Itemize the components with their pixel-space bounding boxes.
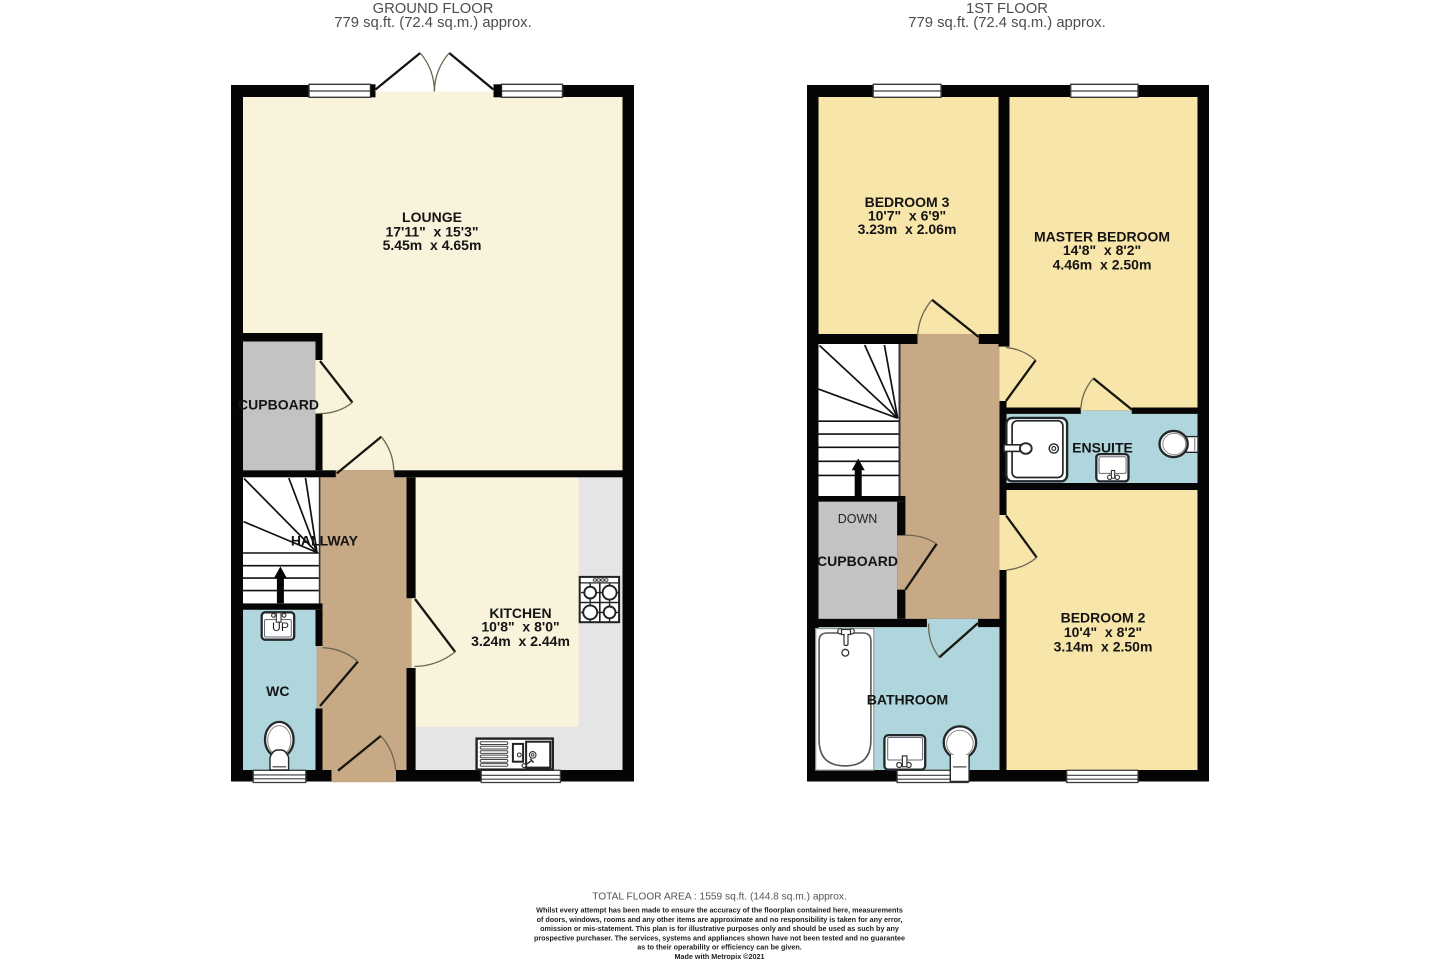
svg-text:Made with Metropix ©2021: Made with Metropix ©2021 bbox=[675, 952, 765, 960]
svg-text:HALLWAY: HALLWAY bbox=[291, 533, 359, 549]
svg-text:779 sq.ft. (72.4 sq.m.) approx: 779 sq.ft. (72.4 sq.m.) approx. bbox=[334, 15, 531, 31]
svg-text:CUPBOARD: CUPBOARD bbox=[817, 553, 898, 569]
svg-text:omission or mis-statement. Thi: omission or mis-statement. This plan is … bbox=[540, 924, 899, 933]
svg-text:3.23m x 2.06m: 3.23m x 2.06m bbox=[858, 221, 957, 237]
svg-text:as to their operability or eff: as to their operability or efficiency ca… bbox=[637, 943, 802, 952]
svg-text:prospective purchaser. The ser: prospective purchaser. The services, sys… bbox=[534, 933, 905, 942]
svg-text:BATHROOM: BATHROOM bbox=[867, 692, 948, 708]
svg-text:5.45m x 4.65m: 5.45m x 4.65m bbox=[383, 237, 482, 253]
svg-text:779 sq.ft. (72.4 sq.m.) approx: 779 sq.ft. (72.4 sq.m.) approx. bbox=[908, 15, 1105, 31]
svg-text:UP: UP bbox=[272, 620, 289, 634]
svg-text:WC: WC bbox=[266, 683, 289, 699]
svg-text:Whilst every attempt has been: Whilst every attempt has been made to en… bbox=[536, 906, 903, 915]
svg-text:3.14m x 2.50m: 3.14m x 2.50m bbox=[1054, 638, 1153, 654]
svg-text:ENSUITE: ENSUITE bbox=[1072, 440, 1133, 456]
svg-text:3.24m x 2.44m: 3.24m x 2.44m bbox=[471, 633, 570, 649]
svg-text:TOTAL FLOOR AREA : 1559 sq.ft.: TOTAL FLOOR AREA : 1559 sq.ft. (144.8 sq… bbox=[592, 891, 847, 902]
svg-text:DOWN: DOWN bbox=[838, 512, 878, 526]
svg-text:CUPBOARD: CUPBOARD bbox=[238, 397, 319, 413]
svg-text:of doors, windows, rooms and a: of doors, windows, rooms and any other i… bbox=[537, 915, 903, 924]
svg-text:4.46m x 2.50m: 4.46m x 2.50m bbox=[1053, 257, 1152, 273]
